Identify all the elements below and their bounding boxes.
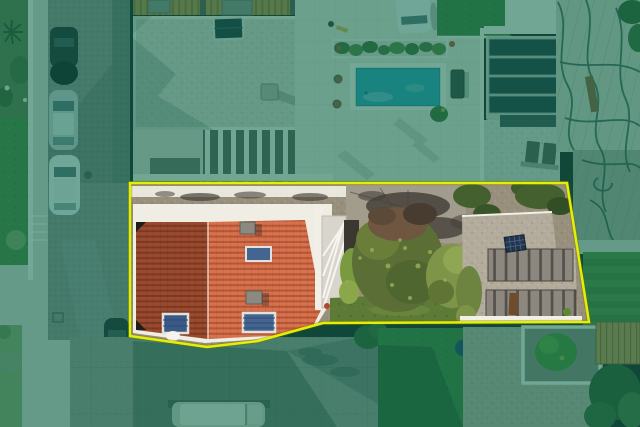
garage-ribbed-roof-top — [488, 249, 573, 281]
roof-window — [243, 313, 275, 332]
roof-chimney — [240, 222, 255, 234]
roof-chimney — [246, 291, 262, 304]
small-plant — [563, 308, 571, 316]
rusty-door — [508, 293, 518, 315]
roof-window — [163, 314, 188, 333]
main-house — [133, 204, 332, 343]
chimney-shadow — [262, 293, 269, 306]
roof-window — [246, 247, 271, 261]
stair-pot — [324, 303, 330, 309]
chimney-shadow — [255, 224, 262, 236]
solar-panel — [504, 235, 526, 253]
aerial-property-photo — [0, 0, 640, 427]
